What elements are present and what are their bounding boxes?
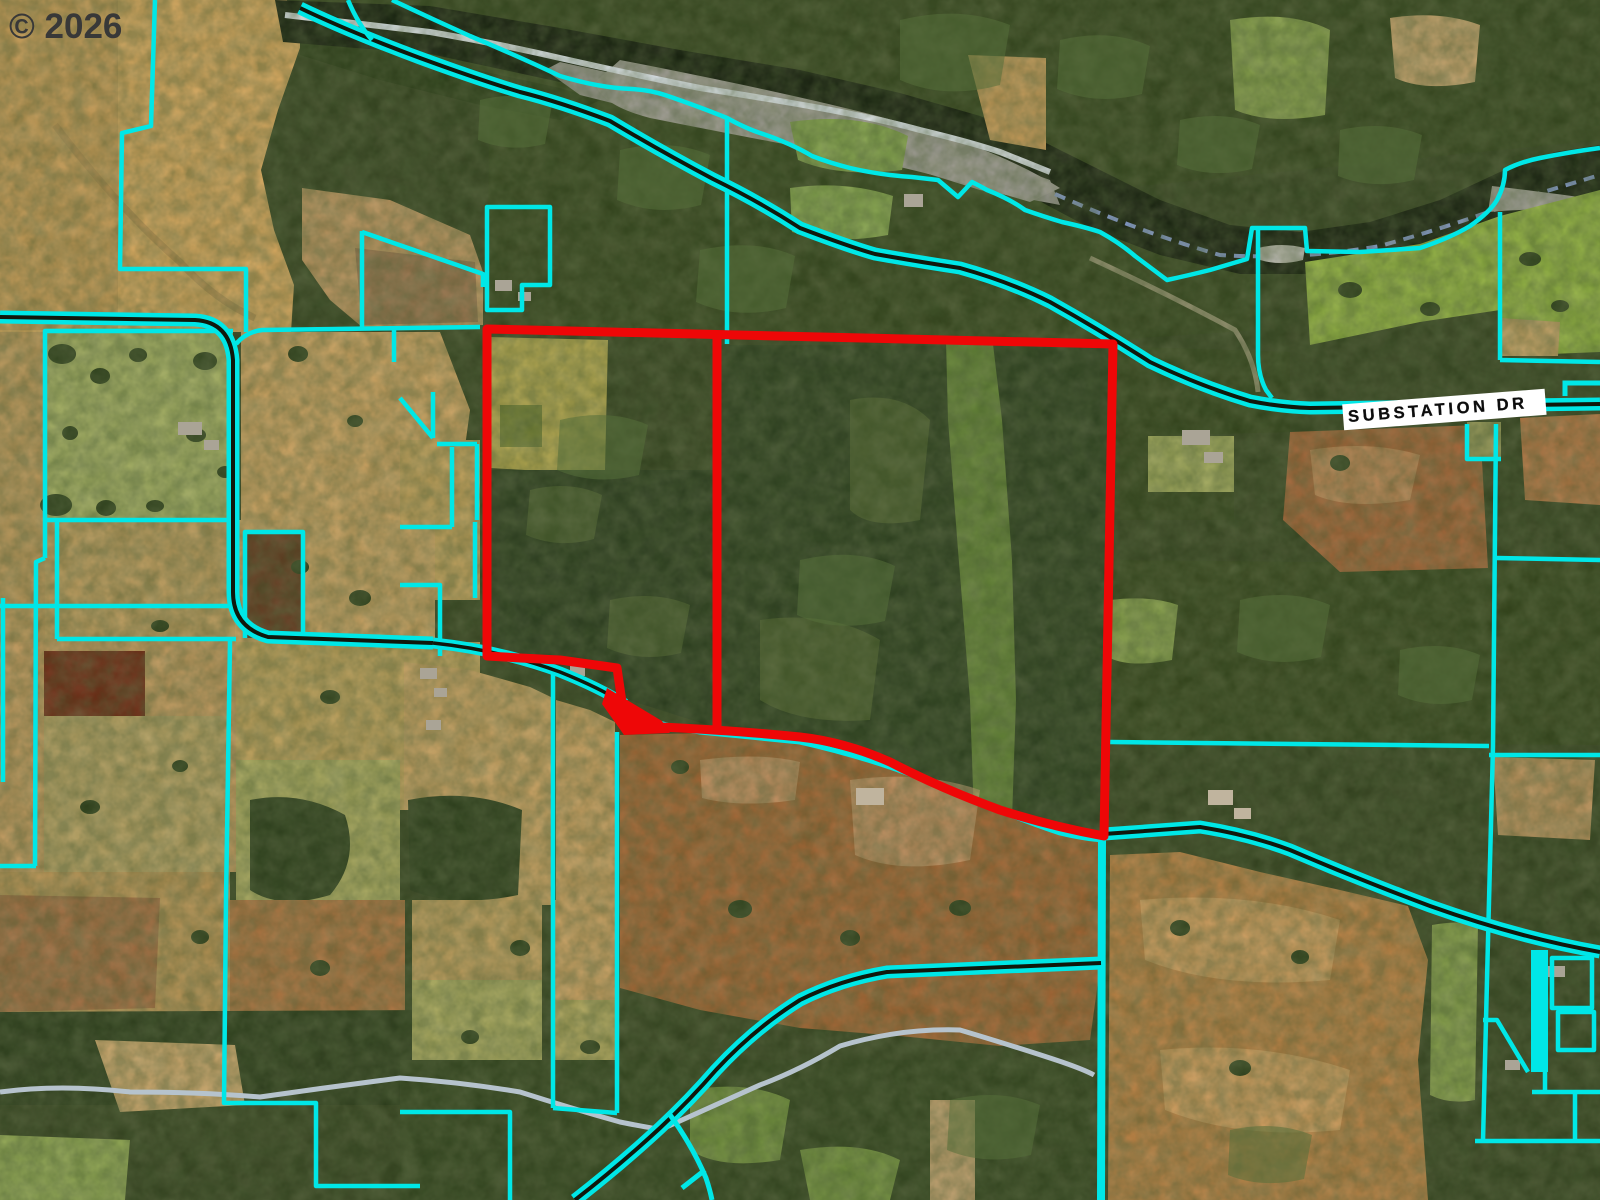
svg-text:© 2026: © 2026	[9, 7, 122, 46]
